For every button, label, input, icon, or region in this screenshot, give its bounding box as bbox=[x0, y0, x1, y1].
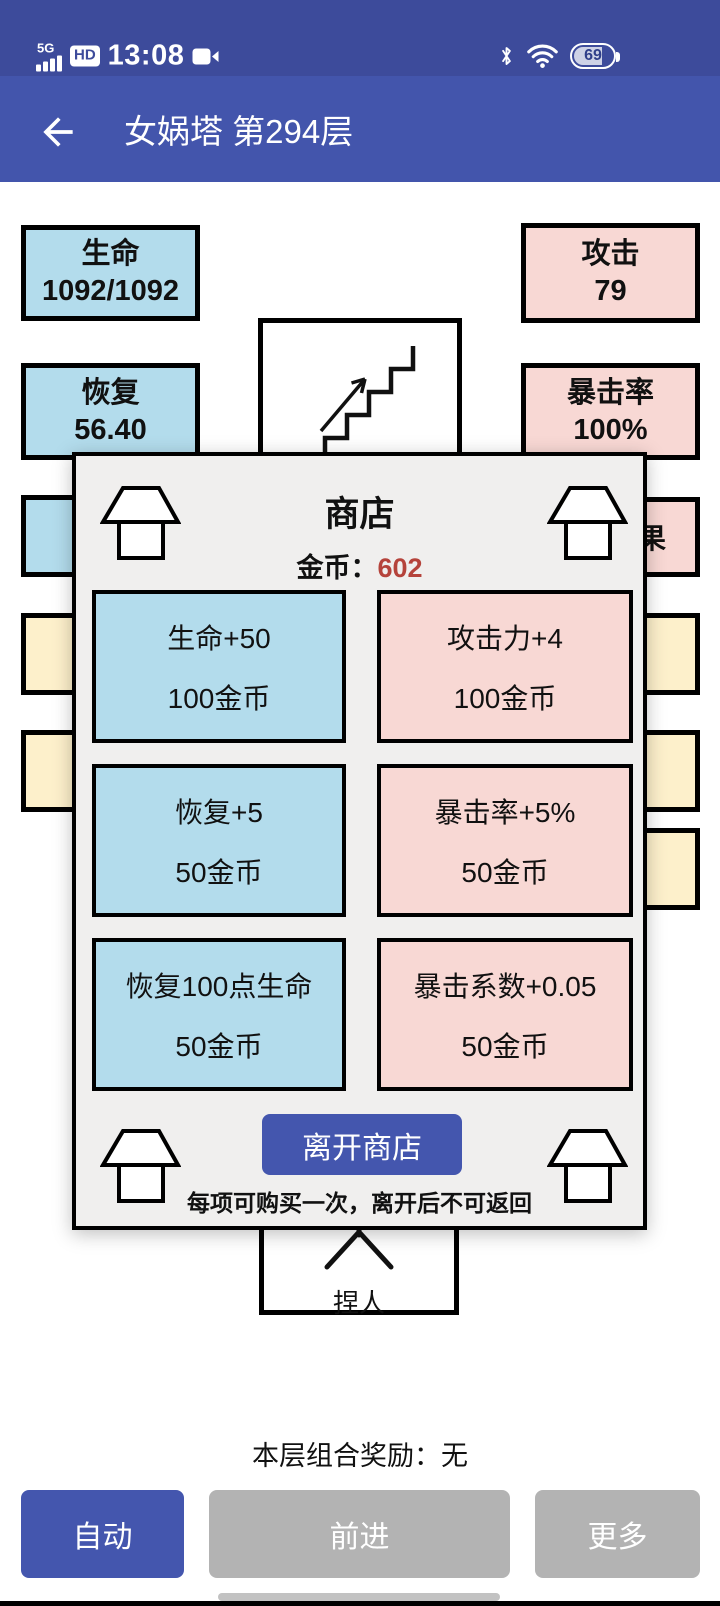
status-bar-left: 5G HD 13:08 bbox=[36, 40, 219, 73]
signal-strength-icon: 5G bbox=[36, 41, 62, 71]
stat-recover-label: 恢复 bbox=[81, 375, 139, 412]
bottom-divider bbox=[0, 1601, 720, 1606]
house-icon-top-right bbox=[547, 482, 628, 567]
shop-dialog: 商店 金币：602 生命+50 100金币 攻击力+4 100金币 bbox=[72, 452, 647, 1230]
stat-attack-value: 79 bbox=[594, 273, 626, 310]
stat-recover-value: 56.40 bbox=[74, 412, 147, 449]
player-room-label: 捏人 bbox=[264, 1283, 454, 1320]
back-arrow-icon bbox=[36, 110, 80, 154]
shop-item-hp[interactable]: 生命+50 100金币 bbox=[92, 590, 346, 743]
stat-crit-value: 100% bbox=[573, 412, 647, 449]
shop-item-recover[interactable]: 恢复+5 50金币 bbox=[92, 764, 346, 917]
page-title: 女娲塔 第294层 bbox=[124, 112, 353, 152]
floor-reward-text: 本层组合奖励：无 bbox=[0, 1434, 720, 1473]
shop-note: 每项可购买一次，离开后不可返回 bbox=[76, 1184, 643, 1218]
auto-button[interactable]: 自动 bbox=[21, 1490, 184, 1578]
shop-item-price: 50金币 bbox=[461, 851, 548, 891]
shop-item-price: 100金币 bbox=[454, 677, 557, 717]
shop-item-crit-rate[interactable]: 暴击率+5% 50金币 bbox=[377, 764, 633, 917]
battery-nub bbox=[616, 52, 620, 62]
status-bar-right: 69 bbox=[498, 43, 616, 69]
shop-item-name: 恢复100点生命 bbox=[126, 965, 313, 1005]
status-bar: 5G HD 13:08 bbox=[0, 0, 720, 76]
wifi-icon bbox=[526, 43, 559, 69]
shop-item-name: 攻击力+4 bbox=[447, 617, 563, 657]
stat-hp-label: 生命 bbox=[81, 236, 139, 273]
stat-hp-value: 1092/1092 bbox=[42, 273, 179, 310]
shop-item-heal[interactable]: 恢复100点生命 50金币 bbox=[92, 938, 346, 1091]
stat-box-crit-rate: 暴击率 100% bbox=[521, 363, 700, 460]
network-type-label: 5G bbox=[37, 41, 54, 54]
shop-item-price: 50金币 bbox=[461, 1025, 548, 1065]
phone-screen: 5G HD 13:08 bbox=[0, 0, 720, 1606]
battery-indicator: 69 bbox=[570, 43, 616, 69]
stairs-icon bbox=[263, 323, 457, 455]
stairs-room bbox=[258, 318, 462, 460]
more-button[interactable]: 更多 bbox=[535, 1490, 700, 1578]
shop-item-name: 恢复+5 bbox=[175, 791, 263, 831]
bluetooth-icon bbox=[498, 43, 515, 69]
shop-item-attack[interactable]: 攻击力+4 100金币 bbox=[377, 590, 633, 743]
app-bar bbox=[0, 76, 720, 182]
shop-item-price: 100金币 bbox=[168, 677, 271, 717]
stat-crit-label: 暴击率 bbox=[567, 375, 654, 412]
gold-value: 602 bbox=[377, 553, 422, 583]
up-arrow-icon bbox=[321, 379, 365, 431]
shop-item-name: 生命+50 bbox=[167, 617, 271, 657]
stat-box-recover: 恢复 56.40 bbox=[21, 363, 200, 460]
gold-label: 金币： bbox=[296, 553, 377, 583]
shop-item-crit-coef[interactable]: 暴击系数+0.05 50金币 bbox=[377, 938, 633, 1091]
camcorder-icon bbox=[192, 46, 219, 66]
stat-box-attack: 攻击 79 bbox=[521, 223, 700, 323]
status-time: 13:08 bbox=[108, 40, 185, 73]
signal-bars-icon bbox=[36, 55, 62, 71]
house-icon-top-left bbox=[100, 482, 181, 567]
shop-item-price: 50金币 bbox=[175, 1025, 262, 1065]
scroll-indicator bbox=[218, 1593, 500, 1601]
battery-percent: 69 bbox=[572, 45, 614, 67]
shop-item-price: 50金币 bbox=[175, 851, 262, 891]
leave-shop-button[interactable]: 离开商店 bbox=[262, 1114, 462, 1175]
stat-attack-label: 攻击 bbox=[581, 236, 639, 273]
back-button[interactable] bbox=[36, 110, 80, 154]
shop-item-name: 暴击系数+0.05 bbox=[414, 965, 597, 1005]
hd-badge: HD bbox=[70, 46, 100, 67]
shop-item-grid: 生命+50 100金币 攻击力+4 100金币 恢复+5 50金币 暴击率+5%… bbox=[92, 590, 635, 1091]
shop-item-name: 暴击率+5% bbox=[435, 791, 576, 831]
forward-button[interactable]: 前进 bbox=[209, 1490, 510, 1578]
stat-box-hp: 生命 1092/1092 bbox=[21, 225, 200, 321]
